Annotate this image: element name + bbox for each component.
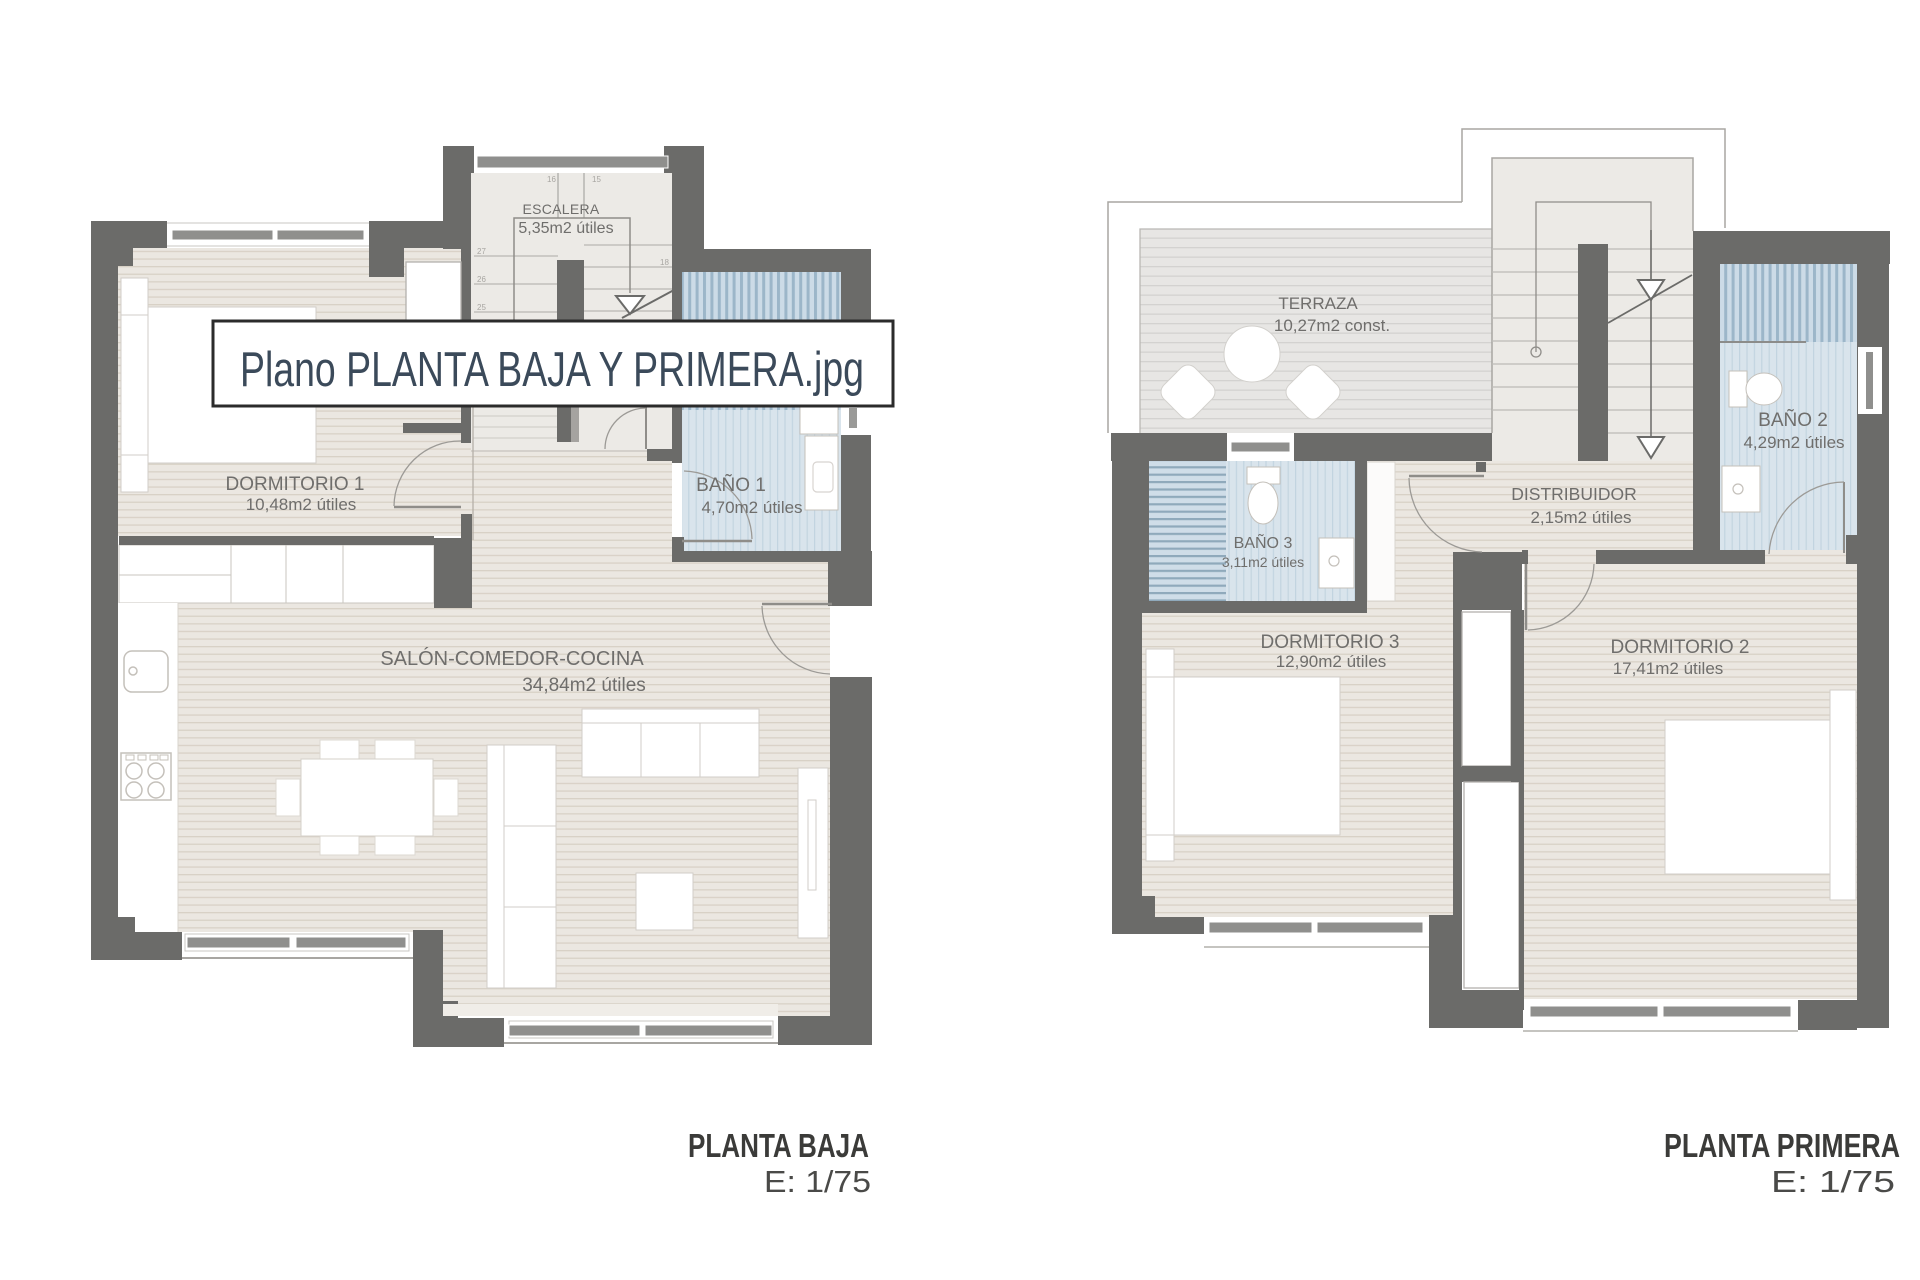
svg-text:DISTRIBUIDOR: DISTRIBUIDOR: [1511, 484, 1636, 504]
svg-text:10,27m2 const.: 10,27m2 const.: [1274, 316, 1390, 335]
svg-text:BAÑO 3: BAÑO 3: [1234, 532, 1293, 552]
svg-text:2,15m2 útiles: 2,15m2 útiles: [1530, 508, 1631, 527]
svg-text:BAÑO 2: BAÑO 2: [1758, 409, 1828, 431]
svg-text:34,84m2 útiles: 34,84m2 útiles: [522, 675, 646, 696]
svg-text:18: 18: [660, 258, 669, 267]
svg-text:3,11m2 útiles: 3,11m2 útiles: [1222, 554, 1304, 570]
svg-text:15: 15: [592, 175, 601, 184]
svg-text:10,48m2 útiles: 10,48m2 útiles: [246, 495, 357, 514]
svg-text:17,41m2 útiles: 17,41m2 útiles: [1613, 659, 1724, 678]
svg-text:ESCALERA: ESCALERA: [522, 201, 599, 217]
svg-text:E: 1/75: E: 1/75: [1771, 1164, 1895, 1199]
svg-text:16: 16: [547, 175, 556, 184]
svg-text:4,70m2 útiles: 4,70m2 útiles: [701, 498, 802, 517]
svg-text:DORMITORIO 2: DORMITORIO 2: [1611, 637, 1750, 658]
svg-text:PLANTA BAJA: PLANTA BAJA: [688, 1127, 869, 1164]
svg-text:DORMITORIO 3: DORMITORIO 3: [1261, 632, 1400, 653]
svg-text:DORMITORIO 1: DORMITORIO 1: [226, 474, 365, 495]
svg-text:PLANTA PRIMERA: PLANTA PRIMERA: [1664, 1127, 1900, 1164]
svg-text:26: 26: [477, 275, 486, 284]
svg-text:12,90m2 útiles: 12,90m2 útiles: [1276, 652, 1387, 671]
svg-text:BAÑO 1: BAÑO 1: [696, 474, 766, 496]
svg-text:25: 25: [477, 303, 486, 312]
svg-text:E: 1/75: E: 1/75: [764, 1164, 871, 1199]
svg-text:SALÓN-COMEDOR-COCINA: SALÓN-COMEDOR-COCINA: [380, 647, 644, 670]
svg-text:Plano PLANTA BAJA Y PRIMERA.jp: Plano PLANTA BAJA Y PRIMERA.jpg: [240, 343, 864, 397]
svg-text:TERRAZA: TERRAZA: [1278, 294, 1358, 313]
svg-text:27: 27: [477, 247, 486, 256]
svg-text:4,29m2 útiles: 4,29m2 útiles: [1743, 433, 1844, 452]
svg-text:5,35m2 útiles: 5,35m2 útiles: [518, 220, 613, 237]
